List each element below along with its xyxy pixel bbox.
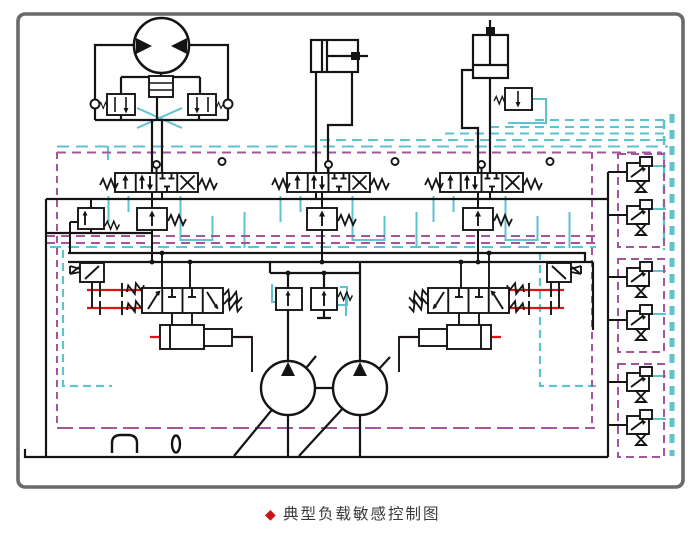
tank-plug — [172, 436, 180, 453]
compensator-2 — [307, 208, 356, 230]
inlet-compensator — [70, 199, 119, 253]
hydraulic-schematic: ◆ 典型负载敏感控制图 — [0, 0, 700, 535]
tank-symbols — [112, 435, 180, 453]
crossline-relief-valve-left — [107, 94, 135, 115]
directional-valve-3 — [440, 173, 523, 192]
pilot-valve-1 — [608, 157, 652, 192]
pilot-valve-column — [608, 157, 652, 445]
outer-frame — [18, 14, 683, 487]
pilot-valve-6 — [608, 410, 652, 445]
figure-caption: 典型负载敏感控制图 — [283, 505, 441, 523]
shuttle-block — [149, 76, 173, 97]
vertical-cylinder-circuit — [462, 20, 532, 173]
pilot-valve-3 — [608, 262, 652, 297]
variable-pump-1 — [261, 361, 315, 415]
tank-breather — [112, 435, 137, 453]
pilot-valve-4 — [608, 305, 652, 340]
directional-valve-1 — [115, 173, 198, 192]
crossline-relief-valve-right — [188, 94, 216, 115]
pilot-valve-2 — [608, 200, 652, 235]
orifice-2 — [392, 158, 399, 165]
compensator-1 — [137, 208, 186, 230]
hydraulic-schematic-page: ◆ 典型负载敏感控制图 — [0, 0, 700, 535]
pump-regulator-left — [70, 251, 252, 372]
directional-valve-bank — [100, 158, 554, 264]
directional-valve-2 — [287, 173, 370, 192]
orifice-1 — [219, 158, 226, 165]
pilot-valve-5 — [608, 367, 652, 402]
variable-pump-2 — [333, 361, 387, 415]
pump-regulator-right — [399, 251, 581, 372]
caption-group: ◆ 典型负载敏感控制图 — [265, 505, 441, 523]
hydraulic-motor-circuit — [91, 18, 233, 173]
orifice-3 — [547, 158, 554, 165]
caption-diamond-icon: ◆ — [265, 507, 276, 523]
